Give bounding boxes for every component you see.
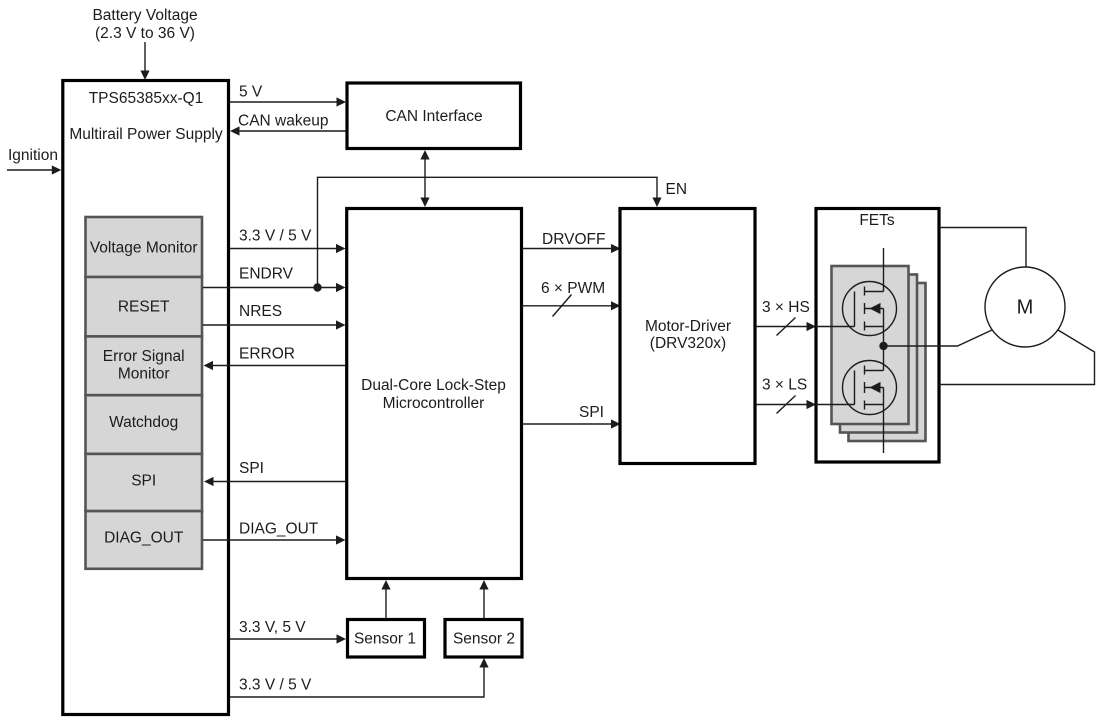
svg-text:5 V: 5 V xyxy=(239,84,263,101)
svg-text:Dual-Core Lock-Step: Dual-Core Lock-Step xyxy=(361,377,506,394)
svg-text:ERROR: ERROR xyxy=(239,346,295,363)
svg-text:ENDRV: ENDRV xyxy=(239,266,294,283)
svg-text:Motor-Driver: Motor-Driver xyxy=(645,318,731,335)
svg-text:Microcontroller: Microcontroller xyxy=(383,395,485,412)
svg-text:RESET: RESET xyxy=(118,299,170,316)
svg-text:3.3 V / 5 V: 3.3 V / 5 V xyxy=(239,228,312,245)
svg-text:M: M xyxy=(1017,297,1034,319)
svg-text:(DRV320x): (DRV320x) xyxy=(650,335,726,352)
svg-text:3.3 V, 5 V: 3.3 V, 5 V xyxy=(239,619,306,636)
svg-text:Monitor: Monitor xyxy=(118,366,170,383)
svg-text:CAN Interface: CAN Interface xyxy=(385,108,482,125)
svg-text:Sensor 2: Sensor 2 xyxy=(453,631,515,648)
svg-text:FETs: FETs xyxy=(859,212,895,229)
svg-text:6 × PWM: 6 × PWM xyxy=(541,280,605,297)
svg-text:TPS65385xx-Q1: TPS65385xx-Q1 xyxy=(89,90,204,107)
svg-text:NRES: NRES xyxy=(239,303,282,320)
svg-text:Ignition: Ignition xyxy=(8,147,58,164)
svg-text:Error Signal: Error Signal xyxy=(103,348,185,365)
svg-text:DRVOFF: DRVOFF xyxy=(542,231,605,248)
svg-text:3 × HS: 3 × HS xyxy=(762,299,810,316)
svg-text:(2.3 V to 36 V): (2.3 V to 36 V) xyxy=(95,25,195,42)
svg-text:Sensor 1: Sensor 1 xyxy=(354,631,416,648)
svg-text:DIAG_OUT: DIAG_OUT xyxy=(239,521,319,538)
svg-text:Watchdog: Watchdog xyxy=(109,414,178,431)
svg-text:CAN wakeup: CAN wakeup xyxy=(238,113,328,130)
svg-text:SPI: SPI xyxy=(131,473,156,490)
svg-text:3.3 V / 5 V: 3.3 V / 5 V xyxy=(239,677,312,694)
svg-text:DIAG_OUT: DIAG_OUT xyxy=(104,530,184,547)
svg-text:SPI: SPI xyxy=(239,460,264,477)
svg-text:Battery Voltage: Battery Voltage xyxy=(92,7,197,24)
svg-text:EN: EN xyxy=(666,181,688,198)
svg-text:Voltage Monitor: Voltage Monitor xyxy=(90,240,198,257)
svg-text:SPI: SPI xyxy=(579,404,604,421)
svg-text:3 × LS: 3 × LS xyxy=(762,377,807,394)
svg-text:Multirail Power Supply: Multirail Power Supply xyxy=(69,126,223,143)
